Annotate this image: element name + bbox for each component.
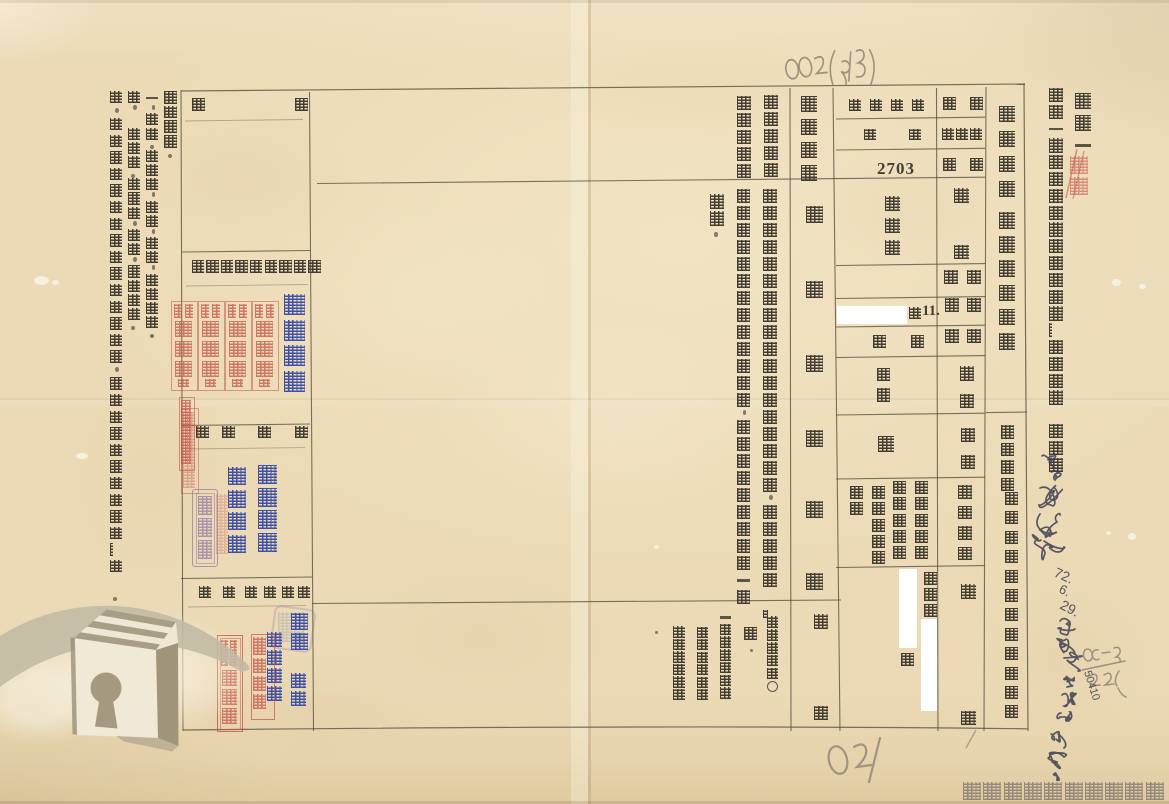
svg-text:29.: 29. [1058, 597, 1083, 620]
svg-text:50410: 50410 [1081, 669, 1102, 702]
